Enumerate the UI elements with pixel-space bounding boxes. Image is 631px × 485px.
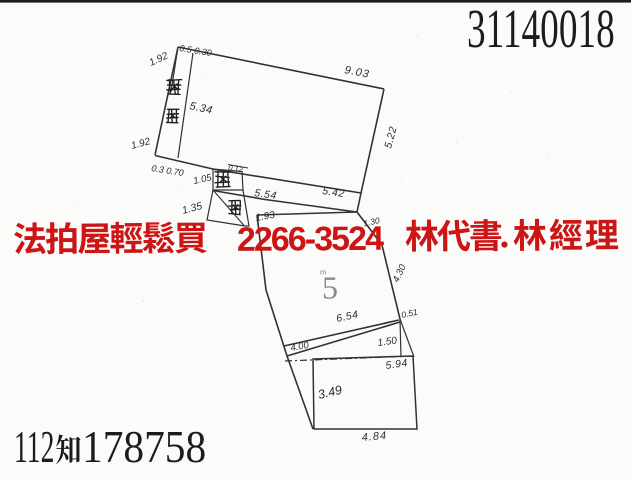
svg-text:2266-3524: 2266-3524: [237, 220, 384, 259]
svg-text:112: 112: [14, 422, 54, 473]
svg-text:31140018: 31140018: [467, 0, 615, 60]
svg-text:178758: 178758: [82, 422, 206, 472]
svg-text:m: m: [320, 268, 326, 277]
svg-text:4.84: 4.84: [361, 430, 387, 444]
